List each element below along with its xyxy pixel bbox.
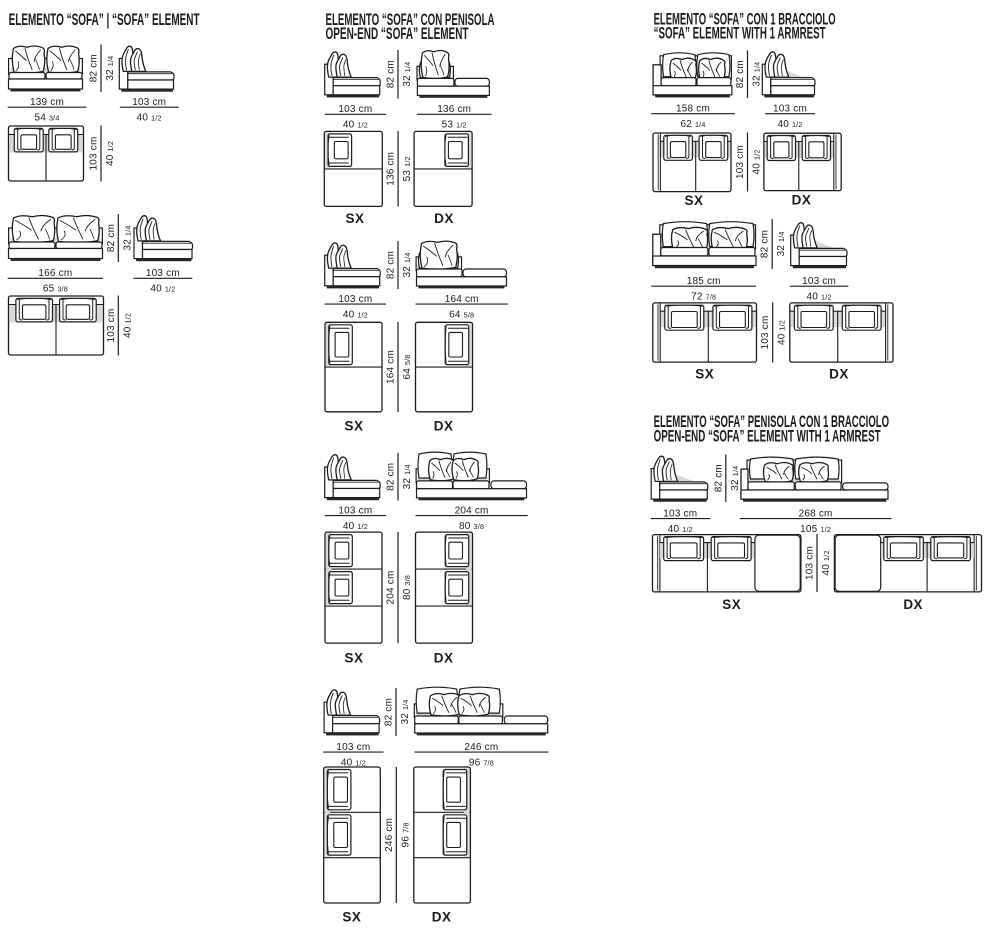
svg-text:64 5/8: 64 5/8 (402, 354, 413, 379)
svg-text:32 1/4: 32 1/4 (402, 62, 413, 87)
svg-text:DX: DX (829, 367, 849, 382)
svg-text:40 1/2: 40 1/2 (343, 120, 368, 131)
svg-text:139 cm: 139 cm (30, 97, 64, 108)
svg-text:40 1/2: 40 1/2 (343, 521, 368, 532)
svg-text:40 1/2: 40 1/2 (752, 149, 763, 174)
svg-text:DX: DX (434, 211, 454, 226)
svg-text:SX: SX (345, 211, 364, 226)
svg-text:SX: SX (344, 651, 363, 666)
svg-text:80 3/8: 80 3/8 (459, 521, 484, 532)
svg-text:103 cm: 103 cm (802, 276, 836, 287)
svg-text:40 1/2: 40 1/2 (343, 310, 368, 321)
svg-text:40 1/2: 40 1/2 (150, 284, 175, 295)
svg-text:82 cm: 82 cm (386, 60, 397, 88)
svg-text:32 1/4: 32 1/4 (400, 699, 411, 724)
svg-text:136 cm: 136 cm (386, 152, 397, 186)
svg-text:103 cm: 103 cm (338, 294, 372, 305)
svg-text:136 cm: 136 cm (437, 104, 471, 115)
svg-text:103 cm: 103 cm (146, 268, 180, 279)
svg-text:53 1/2: 53 1/2 (442, 120, 467, 131)
svg-text:103 cm: 103 cm (106, 309, 117, 343)
svg-text:SX: SX (344, 419, 363, 434)
svg-text:82 cm: 82 cm (386, 463, 397, 491)
svg-text:96 7/8: 96 7/8 (469, 758, 494, 769)
svg-text:82 cm: 82 cm (735, 60, 746, 88)
svg-text:SX: SX (695, 367, 714, 382)
svg-text:40 1/2: 40 1/2 (821, 550, 832, 575)
svg-text:DX: DX (903, 597, 923, 612)
svg-text:32 1/4: 32 1/4 (730, 466, 741, 491)
svg-text:ELEMENTO “SOFA” | “SOFA” ELE: ELEMENTO “SOFA” | “SOFA” ELEMENT (9, 10, 200, 29)
svg-text:246 cm: 246 cm (464, 742, 498, 753)
svg-text:204 cm: 204 cm (386, 571, 397, 605)
svg-text:103 cm: 103 cm (663, 508, 697, 519)
svg-text:164 cm: 164 cm (386, 350, 397, 384)
svg-text:SX: SX (342, 910, 361, 925)
svg-text:OPEN-END “SOFA” ELEMENT: OPEN-END “SOFA” ELEMENT (326, 24, 469, 43)
svg-text:103 cm: 103 cm (338, 505, 372, 516)
svg-text:82 cm: 82 cm (89, 54, 100, 82)
svg-text:204 cm: 204 cm (455, 505, 489, 516)
svg-text:SX: SX (722, 597, 741, 612)
svg-text:DX: DX (434, 419, 454, 434)
svg-text:164 cm: 164 cm (445, 294, 479, 305)
svg-text:82 cm: 82 cm (386, 251, 397, 279)
svg-text:96 7/8: 96 7/8 (400, 822, 411, 847)
svg-text:103 cm: 103 cm (336, 742, 370, 753)
svg-text:“SOFA” ELEMENT WITH 1 ARMREST: “SOFA” ELEMENT WITH 1 ARMREST (654, 23, 826, 42)
svg-text:40 1/2: 40 1/2 (777, 320, 788, 345)
svg-text:40 1/2: 40 1/2 (122, 313, 133, 338)
svg-text:DX: DX (434, 651, 454, 666)
svg-text:80 3/8: 80 3/8 (402, 575, 413, 600)
svg-text:82 cm: 82 cm (713, 464, 724, 492)
svg-text:103 cm: 103 cm (89, 137, 100, 171)
svg-text:OPEN-END “SOFA” ELEMENT WITH 1: OPEN-END “SOFA” ELEMENT WITH 1 ARMREST (654, 427, 881, 446)
svg-text:82 cm: 82 cm (384, 698, 395, 726)
svg-text:32 1/4: 32 1/4 (752, 62, 763, 87)
svg-text:62 1/4: 62 1/4 (680, 119, 705, 130)
svg-text:32 1/4: 32 1/4 (122, 225, 133, 250)
svg-text:246 cm: 246 cm (384, 818, 395, 852)
svg-text:54 3/4: 54 3/4 (34, 113, 59, 124)
svg-text:32 1/4: 32 1/4 (402, 252, 413, 277)
svg-text:72 7/8: 72 7/8 (691, 292, 716, 303)
svg-text:103 cm: 103 cm (735, 145, 746, 179)
svg-text:268 cm: 268 cm (799, 508, 833, 519)
svg-text:32 1/4: 32 1/4 (105, 56, 116, 81)
svg-text:SX: SX (684, 193, 703, 208)
svg-text:103 cm: 103 cm (338, 104, 372, 115)
svg-text:DX: DX (432, 910, 452, 925)
svg-text:DX: DX (792, 193, 812, 208)
svg-text:32 1/4: 32 1/4 (402, 464, 413, 489)
svg-text:32 1/4: 32 1/4 (776, 231, 787, 256)
svg-text:40 1/2: 40 1/2 (137, 113, 162, 124)
svg-text:103 cm: 103 cm (760, 316, 771, 350)
svg-text:64 5/8: 64 5/8 (449, 310, 474, 321)
svg-text:103 cm: 103 cm (773, 104, 807, 115)
svg-text:40 1/2: 40 1/2 (777, 119, 802, 130)
svg-text:40 1/2: 40 1/2 (105, 141, 116, 166)
svg-text:82 cm: 82 cm (760, 230, 771, 258)
svg-text:53 1/2: 53 1/2 (402, 156, 413, 181)
svg-text:40 1/2: 40 1/2 (807, 292, 832, 303)
svg-text:103 cm: 103 cm (805, 546, 816, 580)
svg-text:105 1/2: 105 1/2 (800, 524, 831, 535)
svg-text:166 cm: 166 cm (38, 268, 72, 279)
svg-text:103 cm: 103 cm (132, 97, 166, 108)
svg-text:65 3/8: 65 3/8 (43, 284, 68, 295)
svg-text:158 cm: 158 cm (676, 104, 710, 115)
svg-text:40 1/2: 40 1/2 (668, 524, 693, 535)
svg-text:185 cm: 185 cm (687, 276, 721, 287)
svg-text:82 cm: 82 cm (106, 224, 117, 252)
